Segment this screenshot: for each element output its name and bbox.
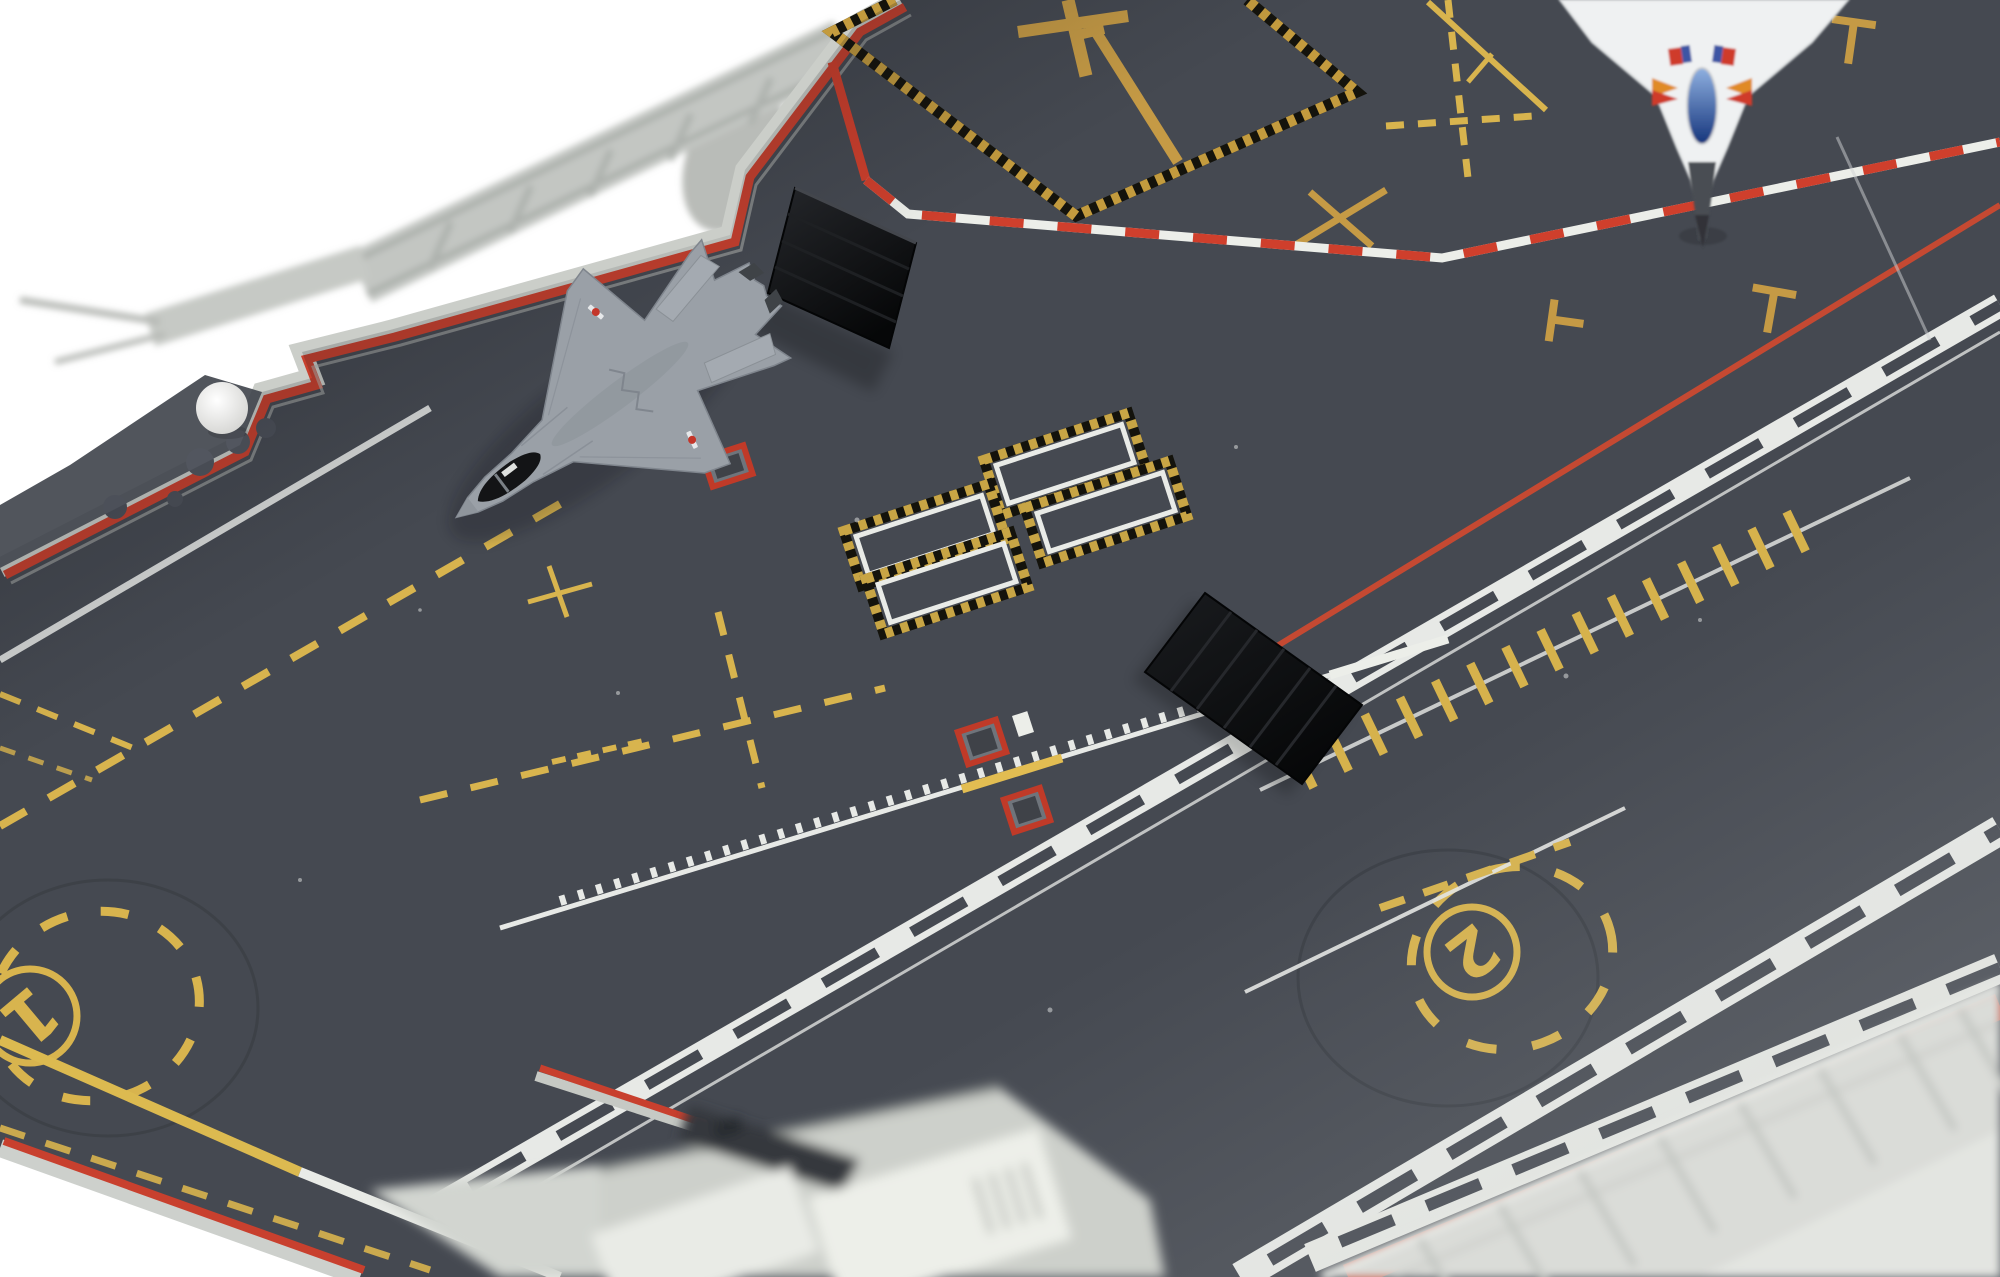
carrier-deck-scene: 2 1 (0, 0, 2000, 1277)
delta-jet-canopy (1687, 68, 1717, 144)
radome-ball (196, 382, 248, 434)
carrier-deck-photo: 2 1 (0, 0, 2000, 1277)
